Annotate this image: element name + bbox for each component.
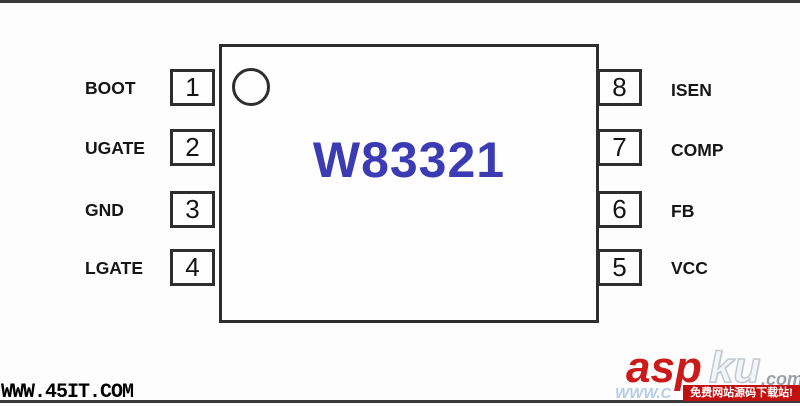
pin-label-isen: ISEN	[671, 80, 712, 100]
pin-number-8: 8	[612, 72, 626, 103]
bottom-border-line	[0, 400, 800, 403]
pin-number-6: 6	[612, 194, 626, 225]
pin-number-2: 2	[185, 132, 199, 163]
pin-number-1: 1	[185, 72, 199, 103]
aspku-logo-dotcom: .com	[761, 369, 800, 390]
pin-number-4: 4	[185, 252, 199, 283]
pin-label-fb: FB	[671, 201, 694, 221]
pin-number-3: 3	[185, 194, 199, 225]
aspku-logo-asp: asp	[626, 346, 702, 390]
pin-label-gnd: GND	[85, 200, 124, 220]
pin-number-7: 7	[612, 132, 626, 163]
pin-number-5: 5	[612, 252, 626, 283]
chip-body: W83321	[219, 44, 599, 323]
aspku-logo-ku: ku	[709, 346, 760, 390]
pin-label-lgate: LGATE	[85, 258, 143, 278]
pin-box-5: 5	[597, 249, 642, 286]
chip-name: W83321	[222, 131, 596, 189]
pin-box-4: 4	[170, 249, 215, 286]
pin-label-boot: BOOT	[85, 78, 136, 98]
top-border-line	[0, 0, 800, 3]
pin-box-2: 2	[170, 129, 215, 166]
pin-label-comp: COMP	[671, 140, 724, 160]
pinout-diagram: W83321 BOOT UGATE GND LGATE 1 2 3 4 8 7 …	[0, 0, 800, 406]
pin1-indicator-circle	[232, 68, 270, 106]
pin-box-1: 1	[170, 69, 215, 106]
pin-label-ugate: UGATE	[85, 138, 145, 158]
pin-box-3: 3	[170, 191, 215, 228]
pin-box-7: 7	[597, 129, 642, 166]
pin-label-vcc: VCC	[671, 258, 708, 278]
pin-box-8: 8	[597, 69, 642, 106]
pin-box-6: 6	[597, 191, 642, 228]
